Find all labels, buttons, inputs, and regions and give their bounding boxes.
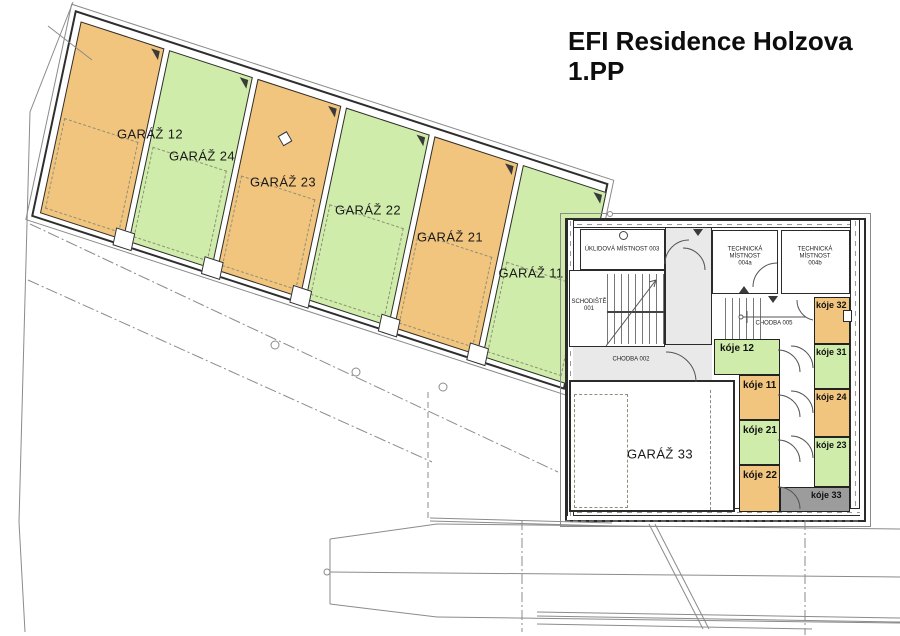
cage-31-label: kóje 31 [816,347,847,357]
door-icon [238,77,248,89]
garage-21-label: GARÁŽ 21 [417,230,483,245]
title-line-1: EFI Residence Holzova [568,26,853,56]
cleaning-room-label: ÚKLIDOVÁ MÍSTNOST 003 [585,247,660,254]
door-icon [768,296,778,303]
cage-24-label: kóje 24 [816,392,847,402]
parking-spot-outline [399,233,492,348]
page-title: EFI Residence Holzova 1.PP [568,26,853,86]
door-icon [326,106,336,118]
floor-plan: GARÁŽ 12 GARÁŽ 24 GARÁŽ 23 GARÁŽ 22 GARÁ… [0,0,900,636]
cage-11-label: kóje 11 [743,380,776,391]
cage-32-notch [843,310,852,322]
parking-spot-outline [133,147,226,262]
title-line-2: 1.PP [568,56,853,86]
cage-12-label: kóje 12 [720,343,754,354]
corridor-002-label: CHODBA 002 [612,357,649,364]
garage-band [31,10,608,390]
garage-23-label: GARÁŽ 23 [250,175,316,190]
door-icon [739,286,749,293]
outer-wall-right [850,220,860,516]
stair-treads [607,274,664,344]
garage-33-divider [710,390,711,510]
outer-wall-top [567,220,860,228]
cage-21-label: kóje 21 [743,425,777,436]
corridor-005-label: CHODBA 005 [755,321,792,328]
parking-spot-outline [574,394,628,508]
garage-11-label: GARÁŽ 11 [498,266,563,281]
door-icon [415,135,425,147]
garage-24-label: GARÁŽ 24 [169,149,235,164]
staircase-label: SCHODIŠTĚ 001 [569,299,609,313]
stair-treads-005 [725,298,761,340]
cage-23-label: kóje 23 [816,440,847,450]
door-icon [592,192,602,204]
cage-22-label: kóje 22 [743,470,777,481]
garage-33-label: GARÁŽ 33 [627,447,693,462]
cage-33-label: kóje 33 [811,490,842,500]
column-icon [278,131,293,146]
basement-block: CHODBA 002 ÚKLIDOVÁ MÍSTNOST 003 TECHNIC… [565,218,866,522]
sink-icon [619,231,628,240]
cage-32-label: kóje 32 [816,300,847,310]
parking-spot-outline [310,204,403,319]
garage-12-label: GARÁŽ 12 [117,127,183,142]
parking-spot-outline [222,175,315,290]
door-icon [149,48,159,60]
technical-room-004b-label: TECHNICKÁ MÍSTNOST 004b [784,247,846,268]
technical-room-004a-label: TECHNICKÁ MÍSTNOST 004a [714,247,776,268]
door-icon [503,163,513,175]
door-icon [693,229,703,236]
stair-landing [607,311,664,313]
garage-22-label: GARÁŽ 22 [335,203,401,218]
